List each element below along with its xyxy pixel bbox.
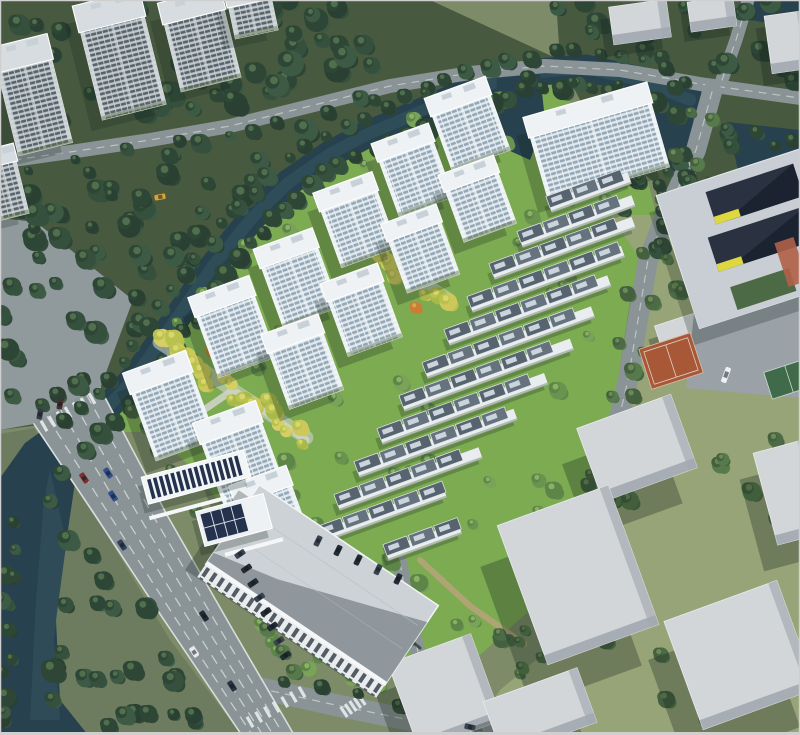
car-glass: [38, 412, 43, 417]
massing-block: [679, 0, 738, 42]
tree-cluster: [301, 661, 318, 677]
tree-cluster: [352, 688, 364, 699]
massing-block: [599, 0, 673, 57]
site-plan-svg: [0, 0, 800, 735]
car-glass: [58, 402, 63, 407]
architectural-aerial-rendering: [0, 0, 800, 735]
car-glass: [158, 195, 163, 200]
tree-cluster: [286, 664, 304, 680]
